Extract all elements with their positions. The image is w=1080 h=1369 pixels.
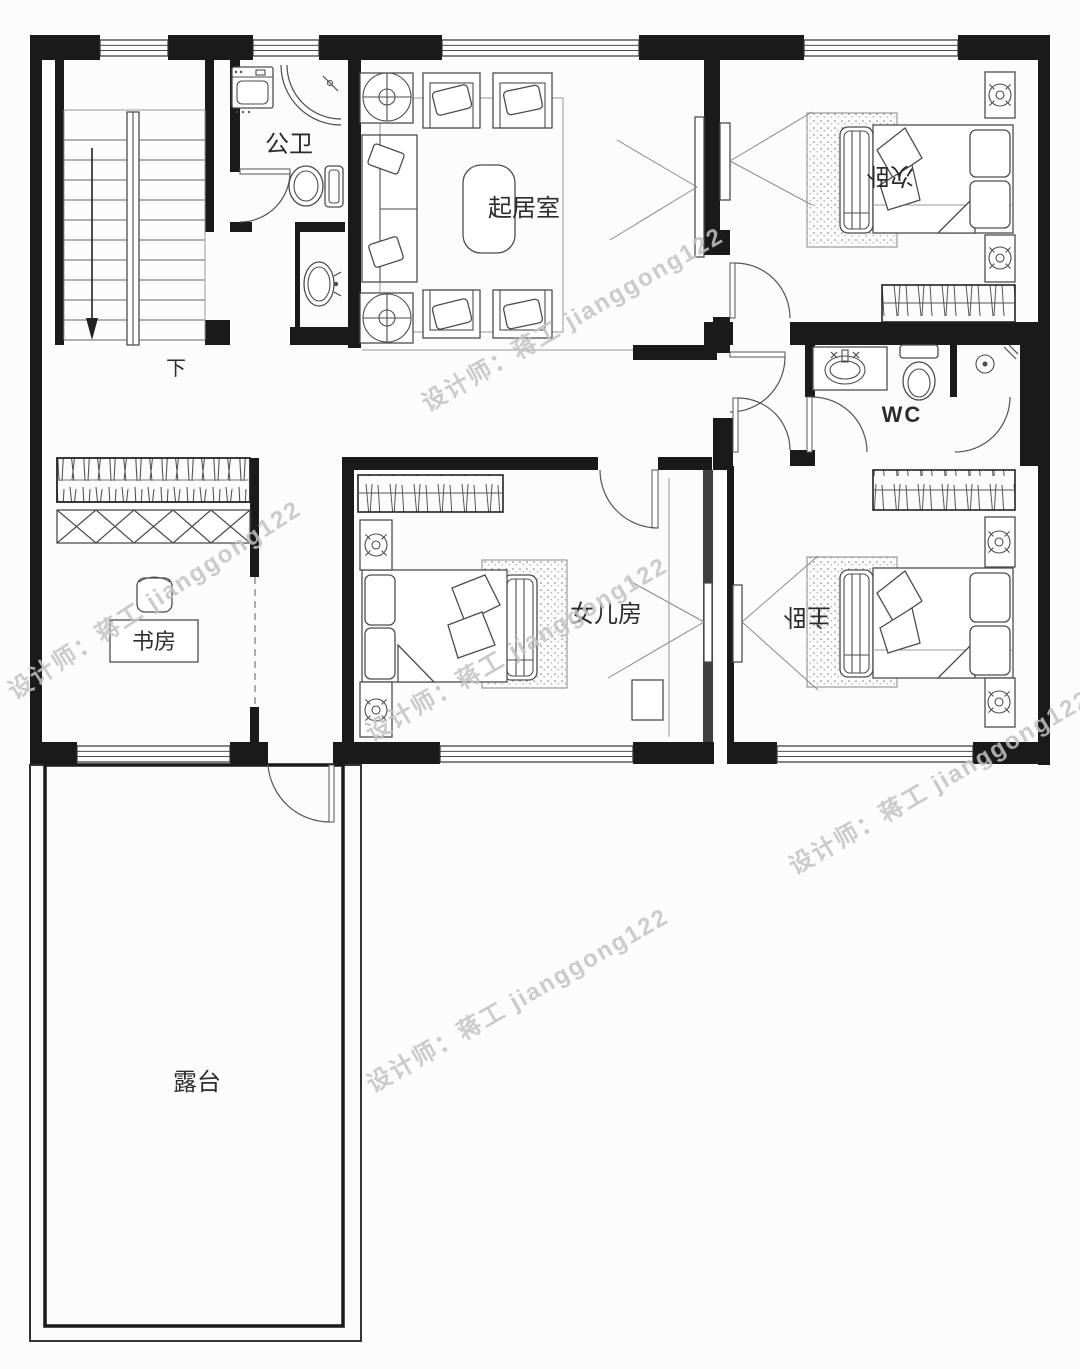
nightstand <box>355 520 397 570</box>
wc-toilet <box>900 345 938 400</box>
pillow <box>970 130 1010 177</box>
nightstand <box>979 235 1021 282</box>
wc-shower <box>976 345 1018 373</box>
wc-door <box>807 397 867 452</box>
armchair <box>423 73 480 128</box>
stair-down-arrow <box>86 148 98 340</box>
master-door <box>733 398 790 452</box>
bookshelf <box>57 458 250 502</box>
window <box>440 746 633 762</box>
pillow <box>365 628 395 679</box>
nightstand <box>978 517 1020 567</box>
pillow <box>365 575 395 625</box>
nightstand <box>978 678 1020 727</box>
pillow <box>970 181 1010 228</box>
washing-machine <box>232 67 273 113</box>
terrace-door <box>268 765 334 822</box>
nightstand <box>979 72 1021 118</box>
room-label-public-bathroom: 公卫 <box>265 131 313 158</box>
room-label-study: 书房 <box>132 629 176 654</box>
bedroom-tv <box>720 112 812 205</box>
cross-braced-shelf <box>57 510 250 543</box>
room-label-living: 起居室 <box>488 195 560 222</box>
pillow <box>970 626 1010 675</box>
bedroom-door <box>730 263 790 318</box>
room-public-bathroom: 公卫 <box>232 65 343 306</box>
window <box>442 40 639 56</box>
floor-plan-svg: 下 <box>0 0 1080 1369</box>
window <box>804 40 958 56</box>
stair-direction-label: 下 <box>166 358 186 380</box>
room-label-terrace: 露台 <box>173 1069 221 1096</box>
window <box>100 40 168 56</box>
corner-shower <box>281 65 341 125</box>
watermark-text: 设计师：蒋工 jianggong122 <box>785 685 1080 880</box>
wardrobe <box>873 470 1015 510</box>
pillow <box>970 573 1010 622</box>
tv-bench <box>840 570 873 677</box>
room-second-bedroom: 次卧 <box>720 72 1021 322</box>
shower-door-arc <box>955 397 1010 452</box>
terrace <box>30 765 361 1341</box>
watermark-text: 设计师：蒋工 jianggong122 <box>363 903 674 1098</box>
stool <box>632 680 663 720</box>
toilet <box>289 166 343 207</box>
armchair <box>493 73 552 128</box>
armchair <box>423 290 480 338</box>
staircase: 下 <box>64 110 205 380</box>
floor-plan-page: 下 <box>0 0 1080 1369</box>
window <box>777 746 973 762</box>
wc-sink <box>813 347 887 390</box>
room-label-wc: WC <box>882 402 923 427</box>
side-table <box>360 293 413 343</box>
wash-basin <box>304 262 341 306</box>
room-wc: WC <box>730 345 1018 452</box>
room-label-master: 主卧 <box>783 603 831 630</box>
side-table <box>360 73 413 123</box>
room-living: 起居室 <box>360 73 704 350</box>
window <box>253 40 319 56</box>
daughter-room-door <box>600 470 658 528</box>
bed <box>873 568 1013 678</box>
wardrobe <box>358 475 503 512</box>
wardrobe <box>882 285 1015 322</box>
sofa <box>362 135 417 282</box>
window <box>77 746 230 762</box>
bathroom-door <box>240 169 290 222</box>
room-label-second-bedroom: 次卧 <box>866 162 914 189</box>
